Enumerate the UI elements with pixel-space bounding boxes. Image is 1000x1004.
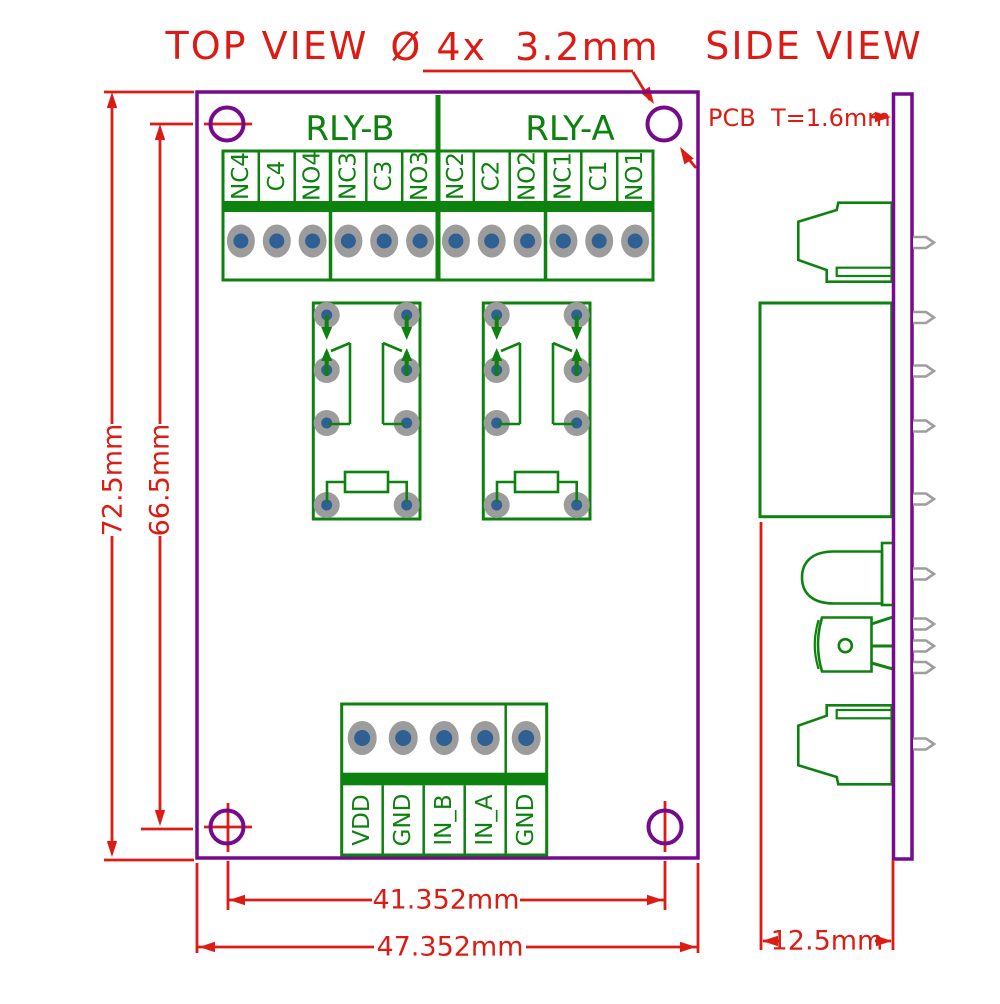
mounting-hole-top-right <box>648 108 681 141</box>
arrowhead-down <box>107 841 117 857</box>
pad-hole <box>233 234 248 249</box>
arrowhead-up <box>107 92 117 108</box>
pad-hole <box>377 234 392 249</box>
contact-arrowhead-up <box>401 348 412 361</box>
transistor-lead <box>872 617 894 624</box>
terminal-block-tab <box>837 710 892 718</box>
solder-pin <box>913 237 934 248</box>
solder-pin <box>913 662 934 673</box>
contact-arrowhead-down <box>401 327 412 340</box>
led-side-profile <box>802 552 882 604</box>
terminal-label: C1 <box>586 161 612 192</box>
terminal-label: NC4 <box>228 152 254 200</box>
pad-hole <box>448 234 463 249</box>
terminal-label: VDD <box>349 794 375 845</box>
pcb-edge-profile <box>894 94 913 859</box>
terminal-label: C2 <box>479 161 505 192</box>
terminal-label: NO3 <box>407 151 433 201</box>
drawing-canvas: TOP VIEW Ø 4x 3.2mm 72.5mm 66.5mm <box>0 0 1000 1000</box>
relay-side-profile <box>760 303 892 517</box>
terminal-label: NC1 <box>550 152 576 200</box>
pad-hole <box>305 234 320 249</box>
transistor-side-profile <box>818 618 872 672</box>
pad-hole <box>269 234 284 249</box>
pad-hole <box>477 730 493 746</box>
relay-coil <box>345 472 388 492</box>
terminal-block-bar <box>342 773 547 786</box>
solder-pin <box>913 494 934 505</box>
terminal-label: NC2 <box>443 152 469 200</box>
arrowhead-down <box>155 810 165 826</box>
relay-footprint-right <box>483 302 590 519</box>
solder-pin <box>913 366 934 377</box>
pad-hole <box>395 730 411 746</box>
contact-arrowhead-up <box>321 348 332 361</box>
terminal-label: NC3 <box>335 152 361 200</box>
terminal-label: NO4 <box>300 151 326 201</box>
terminal-label: GND <box>513 794 539 847</box>
relay-footprint <box>313 302 420 519</box>
terminal-label: C4 <box>264 161 290 192</box>
terminal-label: IN_A <box>472 794 498 845</box>
side-view: SIDE VIEW PCB T=1.6mm <box>705 24 934 957</box>
pcb-thickness-label: PCB T=1.6mm <box>708 104 891 132</box>
solder-pin <box>913 312 934 323</box>
solder-pin <box>913 739 934 750</box>
board-height-dim: 72.5mm <box>98 424 129 537</box>
relay-b-label: RLY-B <box>305 109 394 149</box>
pad-hole <box>592 234 607 249</box>
side-view-title: SIDE VIEW <box>705 24 922 68</box>
contact-arrowhead-down <box>321 327 332 340</box>
arrowhead-left <box>229 895 245 905</box>
transistor-hole <box>839 639 852 652</box>
hole-pitch-h-dim: 41.352mm <box>372 885 519 916</box>
terminal-label: C3 <box>371 161 397 192</box>
solder-pin <box>913 421 934 432</box>
solder-pin <box>913 569 934 580</box>
pad-hole <box>354 730 370 746</box>
control-terminal-block: VDD GND IN_B IN_A GND <box>342 704 547 855</box>
pad-hole <box>436 730 452 746</box>
pad-hole <box>341 234 356 249</box>
terminal-block-tab <box>837 268 892 276</box>
hole-diameter-callout: Ø 4x 3.2mm <box>390 25 659 69</box>
terminal-block-side-profile <box>798 705 891 784</box>
pad-hole <box>484 234 499 249</box>
pad-hole <box>413 234 428 249</box>
solder-pin <box>913 619 934 630</box>
solder-pin <box>913 641 934 652</box>
terminal-label: NO1 <box>622 151 648 201</box>
relay-a-label: RLY-A <box>525 109 615 149</box>
terminal-block-bar <box>223 201 653 212</box>
relay-terminal-block: RLY-B RLY-A NC4 C4 NO4 NC3 C3 NO3 NC2 C2… <box>223 95 653 280</box>
switch-armature <box>383 343 402 351</box>
terminal-block-side-profile <box>798 203 891 282</box>
pad-hole <box>518 730 534 746</box>
arrowhead-right <box>647 895 663 905</box>
pcb-dimension-drawing: TOP VIEW Ø 4x 3.2mm 72.5mm 66.5mm <box>0 0 1000 1000</box>
terminal-label: GND <box>390 794 416 847</box>
pad-hole <box>556 234 571 249</box>
hole-pitch-v-dim: 66.5mm <box>145 424 176 537</box>
pad-hole <box>628 234 643 249</box>
arrowhead-up <box>155 124 165 140</box>
switch-armature <box>331 343 350 351</box>
arrowhead-right <box>680 942 696 952</box>
pad-hole <box>520 234 535 249</box>
terminal-label: NO2 <box>515 151 541 201</box>
terminal-label: IN_B <box>431 794 457 845</box>
depth-dim: 12.5mm <box>771 926 884 957</box>
top-view-title: TOP VIEW <box>165 24 369 68</box>
transistor-lead <box>872 663 894 669</box>
arrowhead-left <box>199 942 215 952</box>
board-width-dim: 47.352mm <box>376 932 523 963</box>
